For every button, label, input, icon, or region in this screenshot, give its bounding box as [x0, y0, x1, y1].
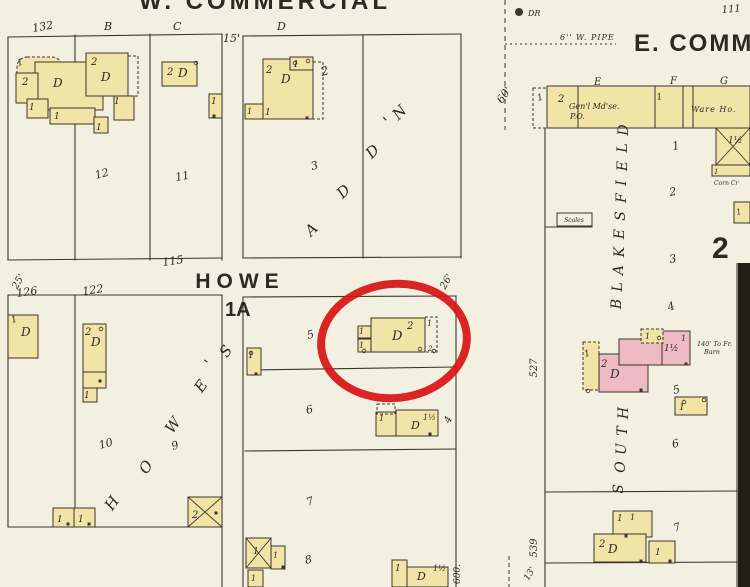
- bldg-label: 2: [406, 321, 413, 332]
- bldg-label: D: [609, 367, 620, 381]
- dim-539: 539: [529, 538, 540, 558]
- chimney-dot: [685, 363, 688, 366]
- bldg-label: 2: [265, 65, 272, 76]
- chimney-dot: [213, 115, 216, 118]
- bldg-label: D: [416, 570, 426, 583]
- chimney-dot: [67, 523, 70, 526]
- frame-building-part: [83, 372, 106, 388]
- bldg-label: D: [280, 72, 291, 86]
- bldg-label: 1: [655, 548, 661, 558]
- bay-letter: G: [720, 76, 728, 87]
- blakesfield-letter: B: [609, 299, 625, 310]
- store-label: Gen'l Md'se.: [569, 102, 619, 111]
- bldg-label: 1: [248, 351, 254, 361]
- bldg-label: 1: [617, 514, 623, 524]
- bldg-label: 1: [359, 341, 364, 350]
- blakesfield-letter: A: [611, 265, 627, 277]
- bldg-label: 1: [681, 334, 686, 343]
- bldg-label: 1: [251, 574, 256, 583]
- bay-letter: E: [593, 77, 602, 88]
- bldg-label: 1: [253, 547, 259, 557]
- barn-note: 140' To Fr.: [697, 340, 732, 348]
- bldg-label: D: [607, 542, 618, 556]
- bldg-label: 1: [630, 513, 635, 522]
- bldg-label: 2: [166, 67, 173, 78]
- chimney-dot: [306, 117, 309, 120]
- chimney-dot: [429, 433, 432, 436]
- barn-note: Barn: [703, 348, 720, 356]
- bldg-label: 1½: [664, 343, 678, 354]
- store-label: P.O.: [569, 112, 585, 121]
- blakesfield-letter: L: [615, 143, 631, 153]
- bldg-label: 2: [427, 345, 433, 353]
- scan-strip: [738, 263, 750, 587]
- blakesfield-letter: E: [612, 229, 628, 240]
- street-w-commercial: W. COMMERCIAL: [139, 0, 391, 15]
- block-label-2: 2: [712, 232, 729, 265]
- bldg-label: 1: [379, 414, 384, 423]
- street-e-commercial: E. COMMERCIAL: [634, 30, 750, 57]
- block-label-1a: 1A: [225, 299, 251, 321]
- bldg-label: 1½: [728, 135, 742, 146]
- chimney-dot: [640, 560, 643, 563]
- bldg-label: 2: [90, 57, 97, 68]
- corncrib-label: Corn Cr: [714, 180, 739, 187]
- bldg-label: 2: [598, 539, 605, 550]
- house-number: 111: [721, 3, 741, 16]
- marker-dr-label: DR: [527, 9, 540, 18]
- sanborn-map-sheet: Sanborn fire insurance map detail - Howe…: [0, 0, 750, 587]
- lot-number: 11: [174, 169, 190, 184]
- blakesfield-letter: I: [614, 180, 630, 187]
- bldg-label: 1: [359, 327, 364, 336]
- bldg-label: 2: [21, 77, 28, 88]
- bldg-label: 1: [645, 332, 650, 341]
- blakesfield-letter: U: [614, 442, 630, 455]
- bldg-label: 1: [29, 103, 35, 113]
- bldg-label: 1: [293, 60, 299, 70]
- bldg-label: 1½: [433, 564, 446, 573]
- warehouse-label: Ware Ho.: [691, 105, 737, 114]
- blakesfield-letter: O: [613, 461, 629, 473]
- lot-letter: C: [173, 20, 182, 33]
- blakesfield-letter: K: [612, 245, 628, 258]
- bldg-label: 2: [191, 510, 198, 521]
- lot-letter: D: [276, 20, 286, 33]
- chimney-dot: [625, 535, 628, 538]
- chimney-dot: [282, 566, 285, 569]
- bldg-label: 1: [211, 97, 217, 107]
- bldg-label: 1: [273, 551, 278, 560]
- dim-600: 600.: [453, 564, 463, 584]
- blakesfield-letter: H: [616, 406, 632, 420]
- bldg-label: 1: [57, 515, 63, 525]
- blakesfield-letter: S: [611, 484, 627, 494]
- bldg-label: 1: [265, 108, 271, 118]
- bldg-label: 2: [600, 359, 607, 370]
- bldg-label: 1: [247, 107, 252, 116]
- blakesfield-letter: L: [610, 282, 626, 292]
- bldg-label: 1: [427, 319, 432, 328]
- dim-15ft: 15': [223, 32, 240, 45]
- bldg-label: D: [410, 419, 420, 432]
- bldg-label: D: [177, 66, 188, 80]
- bay-letter: F: [669, 76, 678, 87]
- blakesfield-letter: E: [615, 161, 631, 172]
- chimney-dot: [640, 389, 643, 392]
- scales-label: Scales: [564, 217, 584, 224]
- blakesfield-letter: F: [614, 192, 630, 204]
- bldg-label: D: [52, 76, 63, 90]
- lot-letter: B: [103, 20, 112, 33]
- bldg-label: 1½: [423, 413, 436, 422]
- bldg-label: D: [20, 325, 31, 339]
- chimney-dot: [669, 560, 672, 563]
- bldg-label: D: [90, 335, 101, 349]
- bldg-label: D: [100, 70, 111, 84]
- blakesfield-letter: S: [613, 211, 629, 221]
- bldg-label: 1: [84, 391, 90, 401]
- bldg-label: 1: [679, 403, 685, 413]
- water-pipe-label: 6'' W. PIPE: [560, 33, 615, 42]
- bldg-label: 2: [557, 94, 564, 105]
- bldg-label: 1: [96, 123, 102, 133]
- bldg-label: 1: [714, 168, 718, 176]
- dim-527: 527: [529, 358, 540, 378]
- map-svg: W. COMMERCIALE. COMMERCIALHOWE1A2SOUTHBL…: [0, 0, 750, 587]
- chimney-dot: [88, 523, 91, 526]
- chimney-dot: [255, 373, 258, 376]
- bldg-label: 1: [78, 515, 84, 525]
- chimney-dot: [99, 380, 102, 383]
- chimney-dot: [215, 512, 218, 515]
- bldg-label: D: [391, 329, 403, 344]
- blakesfield-letter: D: [616, 124, 632, 136]
- dr-marker-dot: [515, 8, 523, 16]
- street-howe: HOWE: [195, 270, 284, 293]
- bldg-label: 1: [54, 112, 60, 122]
- bldg-label: 1: [114, 97, 120, 107]
- bldg-label: 1: [395, 564, 401, 574]
